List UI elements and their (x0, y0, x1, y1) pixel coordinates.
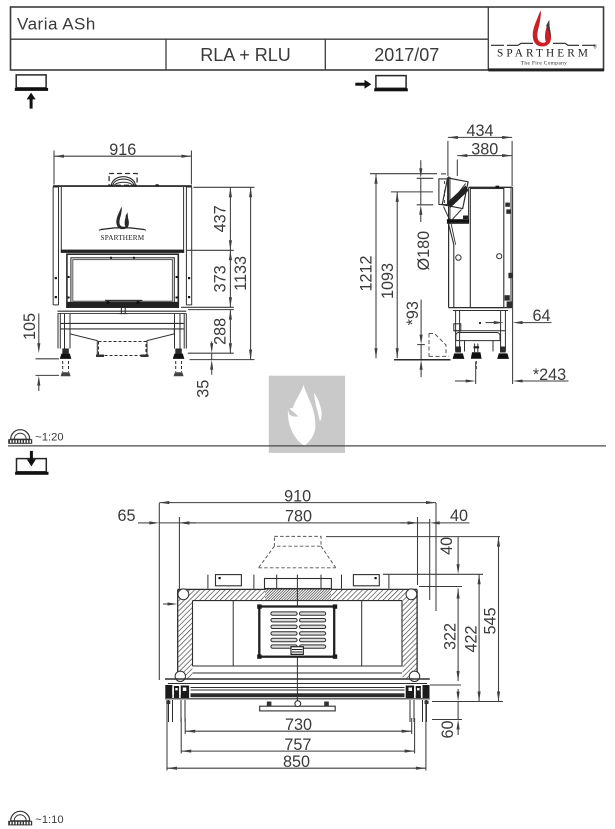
svg-text:Ø180: Ø180 (415, 231, 433, 271)
svg-text:1093: 1093 (379, 263, 397, 299)
svg-text:437: 437 (212, 205, 230, 232)
svg-text:757: 757 (284, 736, 311, 754)
svg-text:40: 40 (438, 537, 456, 555)
svg-text:RLA + RLU: RLA + RLU (200, 45, 291, 65)
svg-text:®: ® (593, 44, 598, 51)
svg-text:SPARTHERM: SPARTHERM (101, 234, 145, 242)
svg-text:~1:10: ~1:10 (35, 814, 63, 826)
svg-text:545: 545 (482, 607, 500, 634)
svg-text:65: 65 (117, 507, 135, 525)
svg-text:434: 434 (466, 122, 493, 140)
svg-text:850: 850 (283, 753, 310, 771)
svg-text:1212: 1212 (357, 255, 375, 291)
svg-text:380: 380 (471, 140, 498, 158)
svg-text:60: 60 (439, 720, 457, 738)
svg-text:*93: *93 (404, 301, 422, 325)
svg-text:1133: 1133 (232, 256, 250, 291)
svg-text:64: 64 (532, 307, 550, 325)
svg-text:373: 373 (212, 265, 230, 292)
svg-text:The Fire Company: The Fire Company (521, 60, 567, 66)
svg-text:Varia ASh: Varia ASh (17, 15, 96, 34)
svg-text:SPARTHERM: SPARTHERM (497, 48, 591, 60)
svg-text:*243: *243 (533, 366, 566, 384)
svg-text:105: 105 (21, 313, 39, 340)
svg-text:422: 422 (463, 625, 481, 652)
svg-text:322: 322 (441, 623, 459, 650)
svg-text:2017/07: 2017/07 (374, 45, 439, 65)
svg-text:780: 780 (285, 508, 312, 526)
svg-text:730: 730 (285, 716, 312, 734)
svg-text:910: 910 (284, 487, 311, 505)
svg-text:288: 288 (212, 318, 230, 345)
svg-text:916: 916 (109, 141, 136, 159)
svg-text:35: 35 (194, 380, 212, 398)
svg-text:40: 40 (450, 507, 468, 525)
svg-text:~1:20: ~1:20 (35, 432, 63, 444)
